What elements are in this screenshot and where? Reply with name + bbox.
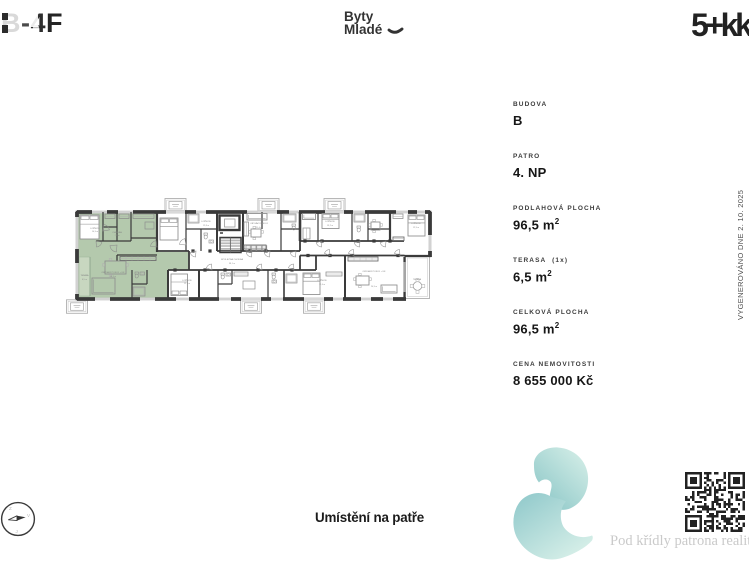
svg-text:OBÝVACÍ POKOJ + KK: OBÝVACÍ POKOJ + KK <box>102 271 126 274</box>
svg-text:6,5 m: 6,5 m <box>82 279 87 281</box>
svg-text:12,4 m: 12,4 m <box>319 284 325 286</box>
svg-text:14,9 m: 14,9 m <box>92 231 98 233</box>
svg-text:TERASA: TERASA <box>413 278 422 281</box>
svg-text:SPOLEČNÁ CHODBA: SPOLEČNÁ CHODBA <box>221 258 243 261</box>
svg-text:38,1 m: 38,1 m <box>229 263 235 265</box>
svg-text:OBÝVACÍ POKOJ + KK: OBÝVACÍ POKOJ + KK <box>363 270 387 273</box>
svg-text:13,2 m: 13,2 m <box>327 225 333 227</box>
svg-text:LOŽNICE: LOŽNICE <box>411 222 421 225</box>
svg-text:OBÝVACÍ POKOJ: OBÝVACÍ POKOJ <box>250 222 268 225</box>
svg-text:LOŽNICE: LOŽNICE <box>201 220 211 223</box>
svg-text:TERASA: TERASA <box>80 274 89 277</box>
svg-text:LOŽNICE: LOŽNICE <box>325 220 335 223</box>
svg-text:12,8 m: 12,8 m <box>203 225 209 227</box>
svg-text:21,4 m: 21,4 m <box>256 227 262 229</box>
svg-text:CHODBA: CHODBA <box>112 231 122 234</box>
svg-text:LOŽNICE: LOŽNICE <box>317 279 327 282</box>
svg-text:LOŽNICE: LOŽNICE <box>90 227 100 230</box>
svg-text:12,9 m: 12,9 m <box>413 227 419 229</box>
svg-text:LOŽNICE: LOŽNICE <box>182 279 192 282</box>
svg-text:7,2 m: 7,2 m <box>114 235 119 237</box>
svg-text:24,9 m: 24,9 m <box>371 286 377 288</box>
svg-text:12,1 m: 12,1 m <box>184 283 190 285</box>
svg-text:28,3 m: 28,3 m <box>110 276 116 278</box>
